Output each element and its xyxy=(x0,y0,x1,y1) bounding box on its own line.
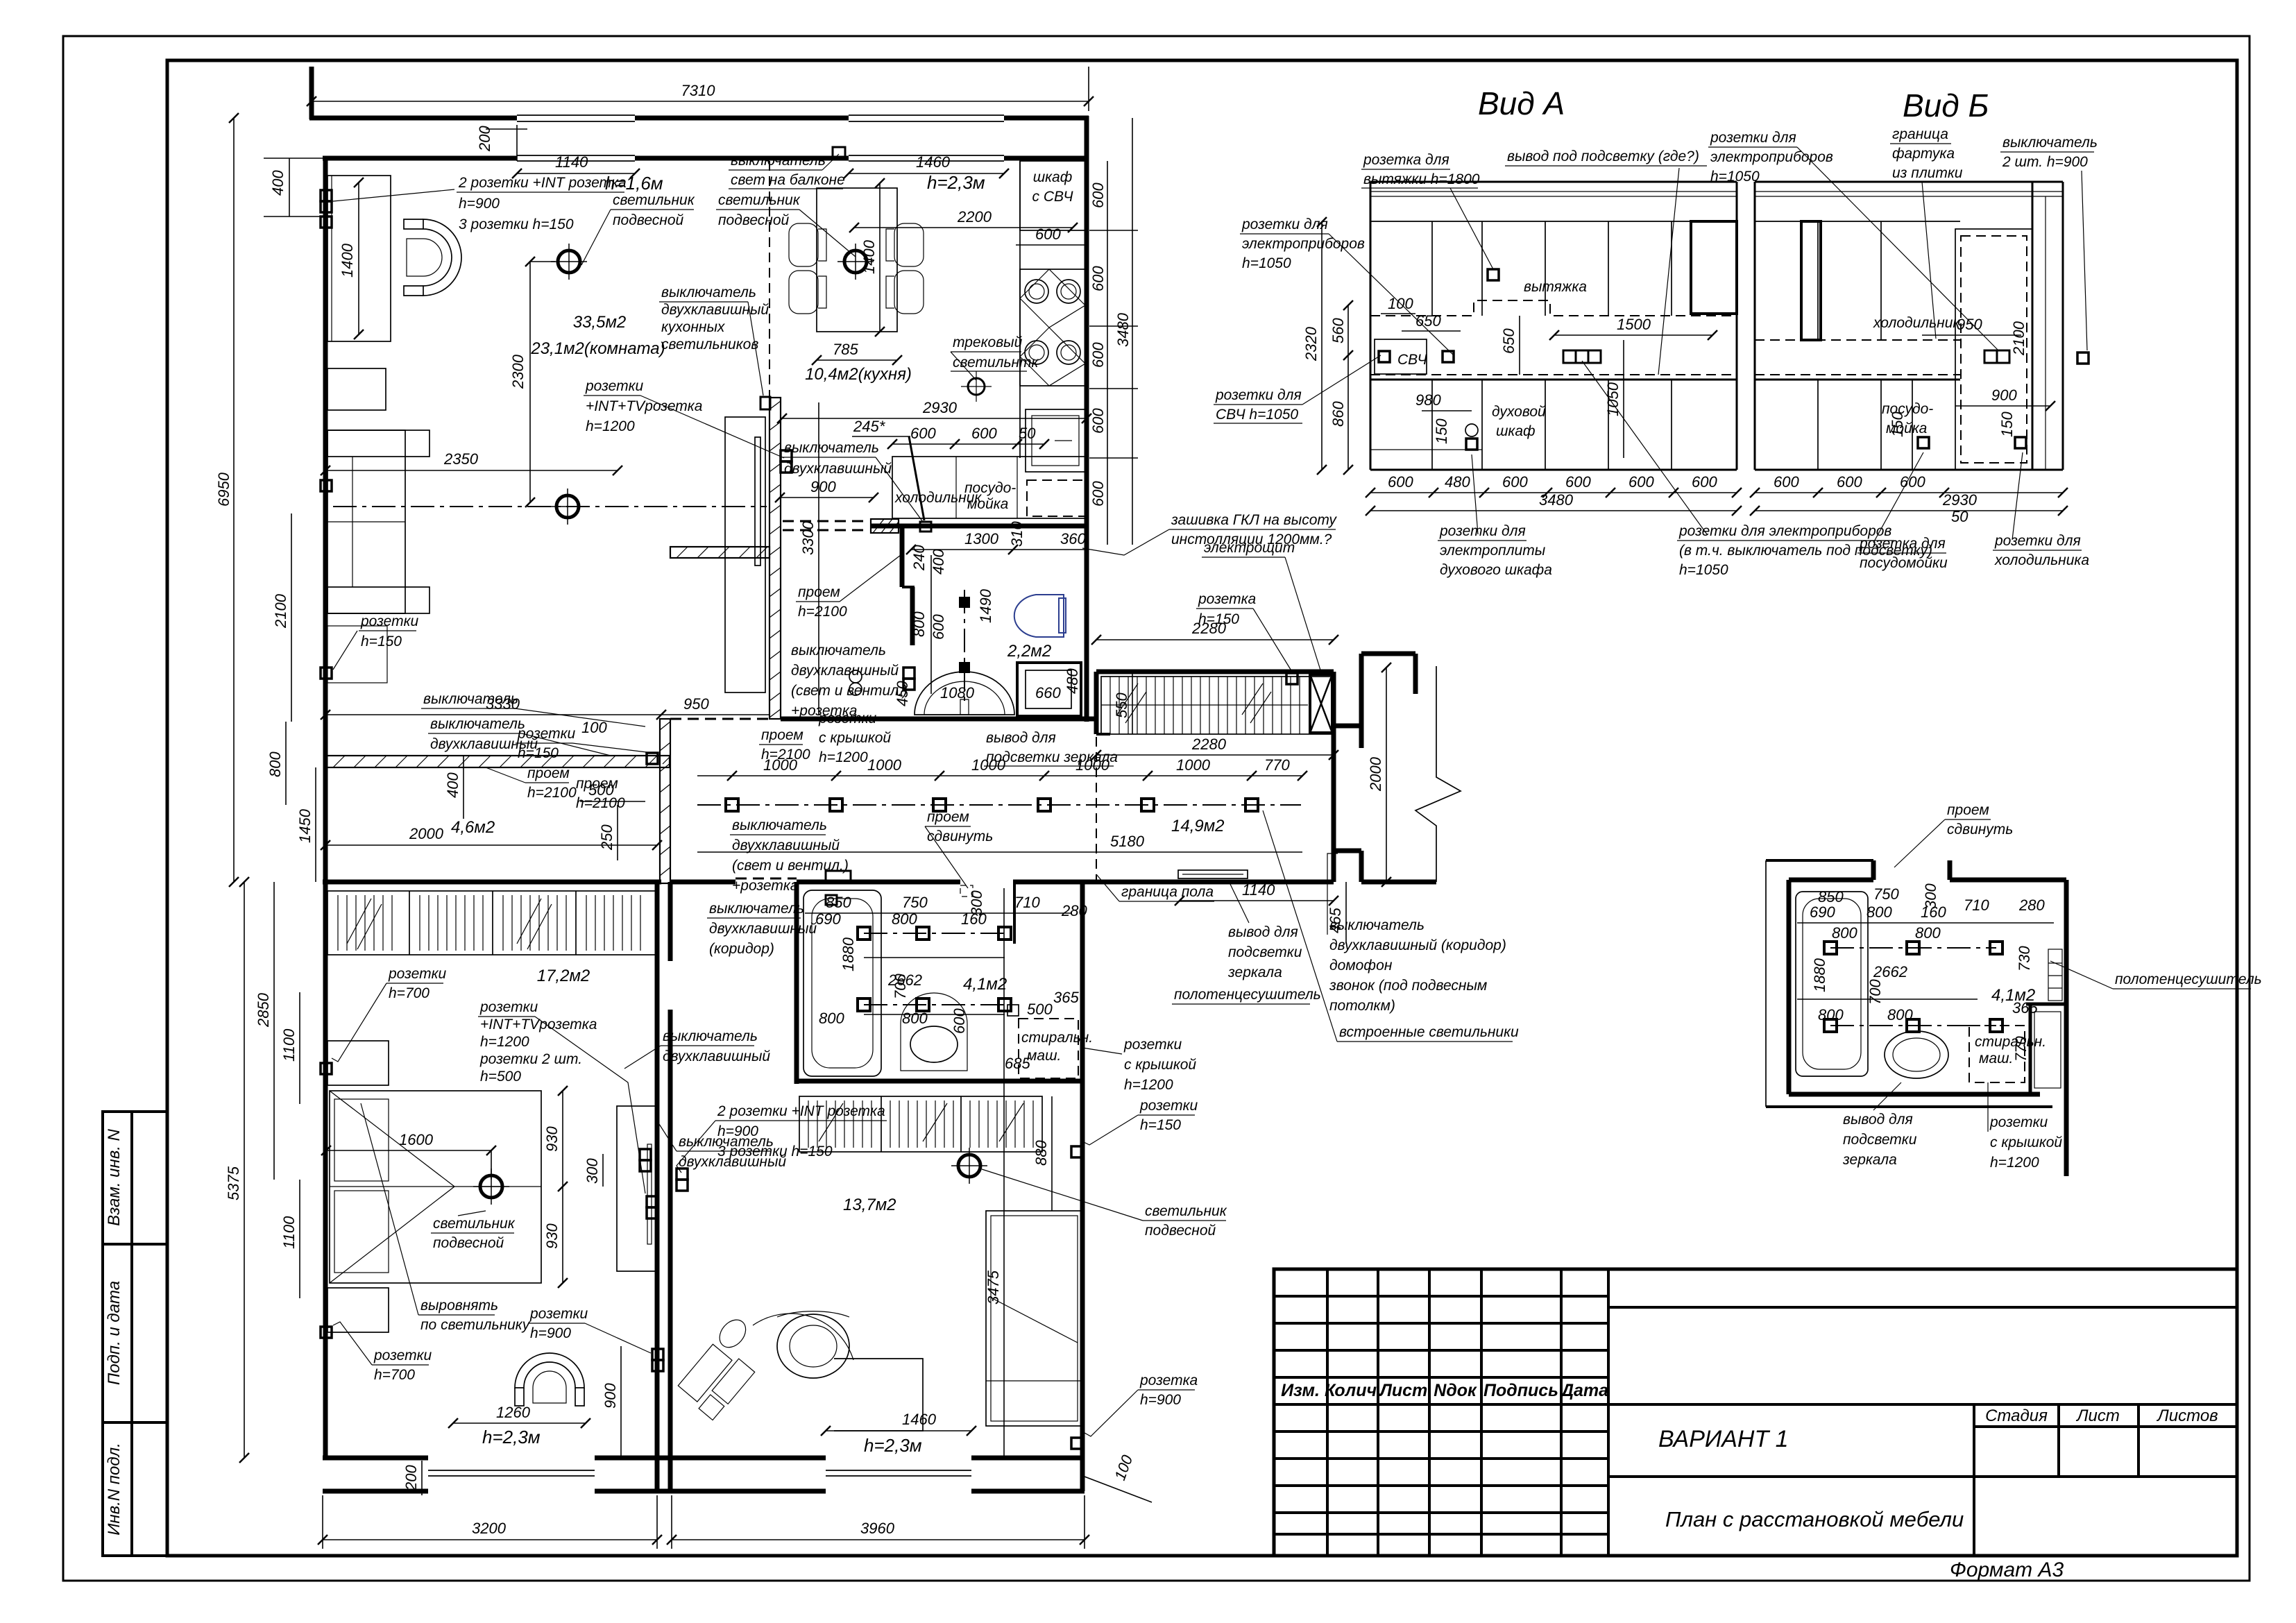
svg-text:1000: 1000 xyxy=(1176,756,1211,774)
svg-text:7310: 7310 xyxy=(681,82,716,99)
svg-text:вывод для: вывод для xyxy=(1843,1112,1913,1128)
svg-text:1100: 1100 xyxy=(280,1216,298,1249)
svg-text:1400: 1400 xyxy=(860,239,878,274)
svg-text:вытяжка: вытяжка xyxy=(1524,279,1587,295)
svg-text:h=1200: h=1200 xyxy=(1990,1155,2039,1171)
svg-text:(коридор): (коридор) xyxy=(709,941,774,957)
svg-text:710: 710 xyxy=(1014,894,1040,911)
svg-text:по светильнику: по светильнику xyxy=(420,1317,531,1333)
svg-text:стиральн.: стиральн. xyxy=(1975,1034,2046,1050)
svg-text:2,2м2: 2,2м2 xyxy=(1007,642,1051,661)
svg-text:1300: 1300 xyxy=(964,530,999,547)
svg-text:h=150: h=150 xyxy=(518,745,559,761)
svg-text:духовой: духовой xyxy=(1492,404,1546,420)
svg-text:5180: 5180 xyxy=(1110,833,1145,850)
svg-text:1400: 1400 xyxy=(339,243,356,278)
svg-text:зеркала: зеркала xyxy=(1227,965,1282,980)
svg-text:600: 600 xyxy=(930,614,947,640)
svg-text:розетки: розетки xyxy=(1139,1098,1198,1114)
svg-text:h=1200: h=1200 xyxy=(1124,1077,1173,1093)
svg-text:розетки: розетки xyxy=(517,726,576,742)
svg-text:духового шкафа: духового шкафа xyxy=(1440,562,1552,578)
svg-text:17,2м2: 17,2м2 xyxy=(537,967,590,985)
svg-text:785: 785 xyxy=(833,341,858,358)
svg-text:600: 600 xyxy=(1089,481,1107,507)
svg-text:Подп. и дата: Подп. и дата xyxy=(105,1281,124,1385)
svg-text:10,4м2(кухня): 10,4м2(кухня) xyxy=(805,365,912,384)
svg-text:600: 600 xyxy=(1502,473,1528,491)
svg-text:зашивка ГКЛ на высоту: зашивка ГКЛ на высоту xyxy=(1171,512,1337,528)
svg-text:600: 600 xyxy=(910,425,936,442)
svg-text:выключатель: выключатель xyxy=(2002,135,2098,151)
svg-text:выключатель: выключатель xyxy=(663,1028,758,1044)
svg-text:33,5м2: 33,5м2 xyxy=(573,313,627,332)
svg-text:480: 480 xyxy=(1445,473,1470,491)
svg-text:800: 800 xyxy=(819,1010,844,1027)
svg-text:светильник: светильник xyxy=(433,1216,516,1232)
svg-text:вывод для: вывод для xyxy=(986,730,1056,746)
svg-text:770: 770 xyxy=(2012,1036,2030,1062)
svg-text:полотенцесушитель: полотенцесушитель xyxy=(2115,971,2262,987)
svg-text:розетки для: розетки для xyxy=(1710,130,1796,146)
svg-text:250: 250 xyxy=(598,824,615,851)
svg-text:электрощит: электрощит xyxy=(1204,540,1295,556)
svg-text:выключатель: выключатель xyxy=(791,643,886,658)
svg-text:выровнять: выровнять xyxy=(420,1298,498,1314)
svg-text:2 шт. h=900: 2 шт. h=900 xyxy=(2002,154,2088,170)
svg-text:730: 730 xyxy=(2016,946,2033,971)
svg-text:23,1м2(комната): 23,1м2(комната) xyxy=(530,339,665,358)
svg-text:800: 800 xyxy=(1915,924,1941,942)
svg-text:2850: 2850 xyxy=(255,992,272,1028)
svg-text:3200: 3200 xyxy=(472,1520,507,1537)
svg-text:выключатель: выключатель xyxy=(732,817,827,833)
svg-text:Лист: Лист xyxy=(1379,1381,1428,1400)
svg-text:электроплиты: электроплиты xyxy=(1440,543,1546,559)
svg-text:860: 860 xyxy=(1329,401,1347,427)
svg-text:h=2100: h=2100 xyxy=(527,785,577,801)
svg-text:550: 550 xyxy=(1113,692,1130,718)
svg-text:750: 750 xyxy=(902,894,928,911)
svg-text:600: 600 xyxy=(1089,266,1107,291)
svg-text:1600: 1600 xyxy=(399,1131,434,1148)
svg-text:розетки для: розетки для xyxy=(1994,533,2081,549)
svg-text:кухонных: кухонных xyxy=(661,319,726,335)
svg-text:3480: 3480 xyxy=(1114,312,1132,347)
svg-text:600: 600 xyxy=(1692,473,1717,491)
svg-text:проем: проем xyxy=(527,765,570,781)
svg-text:розетки: розетки xyxy=(1123,1037,1182,1053)
svg-text:400: 400 xyxy=(444,772,461,798)
svg-text:800: 800 xyxy=(1832,924,1857,942)
svg-text:2100: 2100 xyxy=(272,593,289,629)
svg-text:h=1200: h=1200 xyxy=(819,749,868,765)
svg-text:звонок (под подвесным: звонок (под подвесным xyxy=(1329,978,1487,994)
svg-text:h=900: h=900 xyxy=(459,196,500,212)
svg-text:800: 800 xyxy=(1887,1006,1913,1023)
svg-text:150: 150 xyxy=(1889,411,1906,437)
svg-text:светильник: светильник xyxy=(718,192,801,208)
svg-text:План с расстановкой мебели: План с расстановкой мебели xyxy=(1665,1507,1964,1531)
svg-text:проем: проем xyxy=(761,727,803,743)
svg-text:выключатель: выключатель xyxy=(784,440,879,456)
svg-text:1000: 1000 xyxy=(867,756,902,774)
svg-text:h=2100: h=2100 xyxy=(798,604,847,620)
svg-text:280: 280 xyxy=(1061,902,1087,919)
svg-text:1880: 1880 xyxy=(1811,958,1828,992)
svg-text:шкаф: шкаф xyxy=(1496,423,1536,439)
svg-text:600: 600 xyxy=(971,425,997,442)
svg-text:с СВЧ: с СВЧ xyxy=(1032,189,1074,205)
svg-text:650: 650 xyxy=(1415,312,1441,330)
svg-text:600: 600 xyxy=(1837,473,1862,491)
svg-text:600: 600 xyxy=(1089,408,1107,434)
svg-text:600: 600 xyxy=(1629,473,1654,491)
svg-text:1880: 1880 xyxy=(840,937,857,971)
svg-text:2 розетки +INT розетка: 2 розетки +INT розетка xyxy=(717,1103,885,1119)
svg-text:выключатель: выключатель xyxy=(1329,917,1425,933)
svg-text:h=500: h=500 xyxy=(480,1069,521,1085)
svg-text:650: 650 xyxy=(1500,328,1517,354)
svg-text:2100: 2100 xyxy=(2010,321,2027,356)
svg-text:проем: проем xyxy=(927,809,969,825)
svg-text:вывод под подсветку (где?): вывод под подсветку (где?) xyxy=(1507,148,1699,164)
svg-text:480: 480 xyxy=(1064,668,1081,694)
svg-text:4,1м2: 4,1м2 xyxy=(963,975,1007,994)
svg-text:400: 400 xyxy=(269,170,287,196)
svg-text:(свет и вентил.): (свет и вентил.) xyxy=(791,683,908,699)
svg-text:двухклавишный (коридор): двухклавишный (коридор) xyxy=(1329,937,1506,953)
svg-text:выключатель: выключатель xyxy=(679,1134,774,1150)
svg-text:1080: 1080 xyxy=(940,684,975,702)
svg-text:Взам. инв. N: Взам. инв. N xyxy=(105,1128,124,1225)
svg-text:проем: проем xyxy=(798,584,840,600)
svg-text:проем: проем xyxy=(1947,802,1989,818)
svg-text:1460: 1460 xyxy=(916,153,951,171)
svg-text:Стадия: Стадия xyxy=(1985,1407,2048,1425)
svg-text:Дата: Дата xyxy=(1560,1381,1608,1400)
svg-text:+розетка: +розетка xyxy=(732,878,798,894)
svg-text:900: 900 xyxy=(1991,386,2017,404)
svg-text:710: 710 xyxy=(1964,897,1989,914)
svg-text:700: 700 xyxy=(1866,979,1884,1005)
svg-text:3480: 3480 xyxy=(1539,491,1574,509)
svg-text:h=1050: h=1050 xyxy=(1679,562,1728,578)
svg-text:Вид А: Вид А xyxy=(1478,85,1565,121)
svg-text:800: 800 xyxy=(902,1010,928,1027)
svg-text:маш.: маш. xyxy=(1027,1048,1061,1064)
svg-text:300: 300 xyxy=(584,1158,601,1184)
svg-text:3475: 3475 xyxy=(985,1270,1002,1305)
svg-text:Формат А3: Формат А3 xyxy=(1950,1558,2064,1581)
svg-text:3300: 3300 xyxy=(799,520,817,555)
svg-text:365: 365 xyxy=(2012,999,2038,1017)
svg-text:850: 850 xyxy=(826,894,851,911)
svg-text:Лист: Лист xyxy=(2075,1407,2120,1425)
svg-text:розетка: розетка xyxy=(1198,591,1256,607)
svg-text:h=150: h=150 xyxy=(1140,1117,1181,1133)
svg-text:930: 930 xyxy=(543,1223,561,1249)
svg-text:посудо-: посудо- xyxy=(964,480,1016,496)
svg-text:розетки: розетки xyxy=(1989,1114,2048,1130)
svg-text:двухклавишный: двухклавишный xyxy=(791,663,899,679)
svg-text:с крышкой: с крышкой xyxy=(1990,1135,2062,1150)
svg-text:посудомойки: посудомойки xyxy=(1860,555,1948,571)
svg-text:розетки: розетки xyxy=(818,711,877,726)
svg-text:подвесной: подвесной xyxy=(433,1235,504,1251)
svg-text:Колич.: Колич. xyxy=(1325,1381,1381,1400)
svg-text:трековый: трековый xyxy=(953,334,1023,350)
svg-text:полотенцесушитель: полотенцесушитель xyxy=(1174,987,1321,1003)
svg-text:h=1200: h=1200 xyxy=(586,418,635,434)
svg-text:розетки: розетки xyxy=(388,966,447,982)
svg-text:шкаф: шкаф xyxy=(1033,169,1073,185)
svg-text:h=1200: h=1200 xyxy=(480,1034,529,1050)
svg-text:сдвинуть: сдвинуть xyxy=(1947,822,2013,838)
svg-text:двухклавишный: двухклавишный xyxy=(732,838,840,853)
svg-text:h=2,3м: h=2,3м xyxy=(927,172,985,193)
svg-text:4,6м2: 4,6м2 xyxy=(451,818,495,837)
svg-text:маш.: маш. xyxy=(1979,1051,2013,1067)
svg-text:выключатель: выключатель xyxy=(423,691,518,707)
svg-text:h=900: h=900 xyxy=(530,1325,571,1341)
svg-text:СВЧ h=1050: СВЧ h=1050 xyxy=(1216,407,1298,423)
svg-text:500: 500 xyxy=(1027,1001,1053,1018)
svg-text:h=2,3м: h=2,3м xyxy=(482,1427,541,1447)
svg-text:2280: 2280 xyxy=(1191,736,1227,753)
svg-text:двухклавишный: двухклавишный xyxy=(679,1154,786,1170)
svg-text:сдвинуть: сдвинуть xyxy=(927,829,993,844)
svg-text:подсветки зеркала: подсветки зеркала xyxy=(986,749,1118,765)
svg-text:2300: 2300 xyxy=(509,354,527,389)
svg-text:2 розетки +INT розетка: 2 розетки +INT розетка xyxy=(458,175,627,191)
svg-text:310: 310 xyxy=(1008,521,1026,547)
svg-text:встроенные светильники: встроенные светильники xyxy=(1339,1024,1519,1040)
svg-text:1140: 1140 xyxy=(1242,881,1275,899)
svg-text:14,9м2: 14,9м2 xyxy=(1171,817,1225,835)
svg-text:h=2,3м: h=2,3м xyxy=(864,1435,922,1456)
svg-text:h=700: h=700 xyxy=(389,985,430,1001)
svg-text:1460: 1460 xyxy=(902,1411,937,1428)
svg-text:граница: граница xyxy=(1892,126,1948,142)
svg-text:СВЧ: СВЧ xyxy=(1397,352,1427,368)
svg-text:электроприборов: электроприборов xyxy=(1242,236,1365,252)
svg-text:светильник: светильник xyxy=(1145,1203,1227,1219)
svg-text:вытяжки h=1800: вытяжки h=1800 xyxy=(1363,171,1480,187)
svg-text:розетки: розетки xyxy=(529,1306,588,1322)
svg-text:Подпись: Подпись xyxy=(1483,1381,1558,1400)
svg-text:50: 50 xyxy=(1019,425,1036,442)
svg-text:розетки для: розетки для xyxy=(1215,387,1302,403)
svg-text:h=150: h=150 xyxy=(361,634,402,649)
svg-text:365: 365 xyxy=(1053,989,1079,1006)
svg-text:1490: 1490 xyxy=(977,588,994,623)
svg-text:13,7м2: 13,7м2 xyxy=(843,1196,896,1214)
svg-text:h=1050: h=1050 xyxy=(1710,169,1760,185)
svg-text:+INT+TVрозетка: +INT+TVрозетка xyxy=(586,398,702,414)
svg-text:h=150: h=150 xyxy=(1198,611,1239,627)
svg-text:750: 750 xyxy=(1873,885,1899,903)
svg-text:800: 800 xyxy=(1818,1006,1844,1023)
svg-text:мойка: мойка xyxy=(967,496,1008,512)
svg-text:900: 900 xyxy=(810,478,836,495)
svg-text:вывод для: вывод для xyxy=(1228,924,1298,940)
svg-text:880: 880 xyxy=(1032,1140,1050,1166)
svg-text:домофон: домофон xyxy=(1329,958,1393,974)
svg-text:розетки для: розетки для xyxy=(1241,216,1328,232)
svg-text:2930: 2930 xyxy=(922,399,958,416)
svg-text:930: 930 xyxy=(543,1126,561,1152)
svg-text:300: 300 xyxy=(968,890,985,916)
svg-text:200: 200 xyxy=(476,126,493,152)
svg-text:Листов: Листов xyxy=(2156,1407,2218,1425)
svg-text:подвесной: подвесной xyxy=(613,212,684,228)
svg-text:холодильника: холодильника xyxy=(1994,552,2089,568)
svg-text:подвесной: подвесной xyxy=(718,212,790,228)
svg-text:Инв.N подл.: Инв.N подл. xyxy=(105,1443,124,1536)
svg-text:h=700: h=700 xyxy=(374,1367,415,1383)
svg-text:900: 900 xyxy=(602,1383,619,1409)
svg-text:фартука: фартука xyxy=(1892,146,1955,162)
svg-text:двухклавишный: двухклавишный xyxy=(661,302,769,318)
svg-text:600: 600 xyxy=(1774,473,1799,491)
svg-text:600: 600 xyxy=(1565,473,1591,491)
svg-text:100: 100 xyxy=(581,719,607,736)
svg-text:2930: 2930 xyxy=(1942,491,1978,509)
svg-text:3960: 3960 xyxy=(860,1520,895,1537)
svg-text:светильников: светильников xyxy=(661,337,758,352)
svg-text:двухклавишный: двухклавишный xyxy=(784,461,892,477)
svg-text:потолкм): потолкм) xyxy=(1329,998,1395,1014)
svg-text:розетка для: розетка для xyxy=(1859,536,1946,552)
svg-text:600: 600 xyxy=(1089,182,1107,208)
svg-text:400: 400 xyxy=(930,549,947,575)
svg-text:600: 600 xyxy=(1089,342,1107,368)
svg-text:2662: 2662 xyxy=(1873,963,1907,980)
svg-text:800: 800 xyxy=(266,751,284,777)
svg-text:розетки: розетки xyxy=(373,1348,432,1363)
svg-text:светильник: светильник xyxy=(613,192,695,208)
svg-text:245*: 245* xyxy=(853,418,886,435)
svg-text:2350: 2350 xyxy=(443,450,479,468)
svg-text:зеркала: зеркала xyxy=(1842,1152,1897,1168)
svg-text:холодильник: холодильник xyxy=(1873,315,1960,331)
svg-text:ВАРИАНТ 1: ВАРИАНТ 1 xyxy=(1658,1426,1789,1452)
svg-text:h=2100: h=2100 xyxy=(761,747,810,763)
svg-text:с крышкой: с крышкой xyxy=(1124,1057,1196,1073)
svg-text:h=900: h=900 xyxy=(1140,1392,1181,1408)
svg-text:2000: 2000 xyxy=(1367,756,1384,792)
svg-text:360: 360 xyxy=(1060,530,1086,547)
svg-text:1050: 1050 xyxy=(1604,382,1622,416)
svg-text:двухклавишный: двухклавишный xyxy=(709,921,817,937)
svg-text:50: 50 xyxy=(1951,508,1968,525)
svg-text:600: 600 xyxy=(951,1008,968,1034)
svg-text:из плитки: из плитки xyxy=(1892,165,1963,181)
svg-text:3 розетки h=150: 3 розетки h=150 xyxy=(459,216,574,232)
svg-text:выключатель: выключатель xyxy=(709,901,804,917)
svg-text:980: 980 xyxy=(1415,391,1441,409)
svg-text:5375: 5375 xyxy=(225,1166,242,1200)
svg-text:розетки: розетки xyxy=(479,999,538,1015)
svg-text:граница пола: граница пола xyxy=(1121,884,1214,900)
svg-text:600: 600 xyxy=(1035,226,1061,243)
svg-text:розетки: розетки xyxy=(585,378,644,394)
svg-text:1140: 1140 xyxy=(555,153,588,171)
svg-text:h=1050: h=1050 xyxy=(1242,255,1291,271)
svg-text:1500: 1500 xyxy=(1617,316,1651,333)
svg-text:690: 690 xyxy=(1810,903,1835,921)
svg-text:электроприборов: электроприборов xyxy=(1710,149,1833,165)
svg-text:660: 660 xyxy=(1035,684,1061,702)
svg-text:Nдок: Nдок xyxy=(1434,1381,1477,1400)
svg-text:Вид Б: Вид Б xyxy=(1903,87,1989,124)
svg-text:770: 770 xyxy=(1264,756,1290,774)
svg-text:800: 800 xyxy=(1866,903,1892,921)
svg-text:950: 950 xyxy=(683,695,709,713)
svg-text:2200: 2200 xyxy=(957,208,992,226)
svg-text:подсветки: подсветки xyxy=(1843,1132,1917,1148)
svg-text:розетка для: розетка для xyxy=(1363,152,1449,168)
svg-text:h=2100: h=2100 xyxy=(576,795,625,811)
svg-text:700: 700 xyxy=(892,974,909,999)
svg-text:выключатель: выключатель xyxy=(430,716,525,732)
svg-text:150: 150 xyxy=(1433,418,1450,444)
svg-text:280: 280 xyxy=(2018,897,2045,914)
svg-text:300: 300 xyxy=(1922,883,1939,909)
svg-text:2320: 2320 xyxy=(1302,326,1320,362)
svg-text:розетки: розетки xyxy=(360,613,419,629)
svg-text:150: 150 xyxy=(1998,411,2016,437)
svg-text:800: 800 xyxy=(910,611,928,637)
svg-text:розетки для: розетки для xyxy=(1439,523,1526,539)
svg-text:6950: 6950 xyxy=(215,472,232,507)
svg-text:560: 560 xyxy=(1329,318,1347,343)
svg-text:подсветки: подсветки xyxy=(1228,944,1302,960)
svg-text:1100: 1100 xyxy=(280,1028,298,1062)
svg-text:двухклавишный: двухклавишный xyxy=(663,1048,770,1064)
svg-text:1450: 1450 xyxy=(296,808,314,843)
svg-text:свет на балконе: свет на балконе xyxy=(731,172,845,188)
svg-text:2000: 2000 xyxy=(409,825,444,842)
svg-text:подвесной: подвесной xyxy=(1145,1223,1216,1239)
svg-text:выключатель: выключатель xyxy=(731,153,826,169)
svg-text:розетки 2 шт.: розетки 2 шт. xyxy=(479,1051,582,1067)
svg-text:с крышкой: с крышкой xyxy=(819,730,891,746)
svg-text:розетка: розетка xyxy=(1139,1373,1198,1388)
svg-text:600: 600 xyxy=(1388,473,1413,491)
svg-text:выключатель: выключатель xyxy=(661,284,756,300)
svg-text:проем: проем xyxy=(576,776,618,792)
svg-text:1260: 1260 xyxy=(496,1404,531,1421)
svg-text:200: 200 xyxy=(402,1465,420,1491)
svg-text:стиральн.: стиральн. xyxy=(1021,1030,1093,1046)
svg-text:Изм.: Изм. xyxy=(1281,1381,1320,1400)
